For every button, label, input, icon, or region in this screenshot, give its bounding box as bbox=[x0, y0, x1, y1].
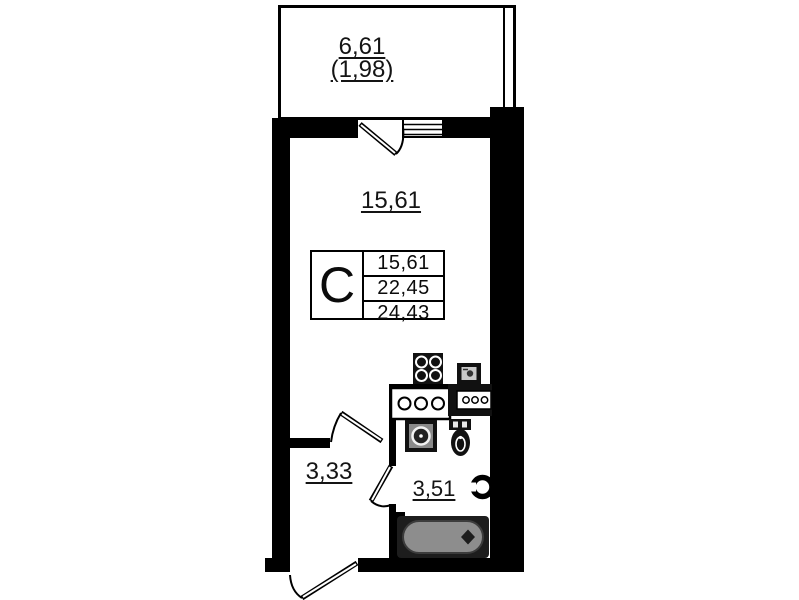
wall-left bbox=[272, 118, 290, 572]
apartment-info-box: C 15,61 22,45 24,43 bbox=[310, 250, 445, 320]
floor-plan: 6,61 (1,98) 15,61 3,33 3,51 C 15,61 22,4… bbox=[0, 0, 799, 600]
balcony-door bbox=[360, 124, 403, 154]
wall-bottom-right bbox=[358, 558, 524, 572]
entrance-door bbox=[290, 563, 357, 598]
kitchen-unit bbox=[448, 384, 492, 416]
area-value: 22,45 bbox=[364, 277, 443, 302]
room-area-label: 15,61 bbox=[331, 188, 451, 213]
living-area-value: 15,61 bbox=[364, 252, 443, 277]
balcony-reduced-area-label: (1,98) bbox=[302, 57, 422, 82]
wall-bottom-left-stub bbox=[265, 558, 290, 572]
total-area-value: 24,43 bbox=[364, 302, 443, 325]
wall-right bbox=[490, 107, 524, 572]
washing-machine-icon bbox=[405, 420, 437, 452]
bathroom-area-label: 3,51 bbox=[394, 477, 474, 500]
kitchen-counter bbox=[391, 388, 450, 419]
apartment-areas-table: 15,61 22,45 24,43 bbox=[364, 252, 443, 318]
bathroom-door bbox=[371, 466, 391, 506]
hallway-area-label: 3,33 bbox=[289, 459, 369, 484]
apartment-type-label: C bbox=[312, 252, 364, 318]
balcony-window bbox=[403, 119, 443, 137]
stove-icon bbox=[413, 353, 443, 384]
kitchen-sink-icon bbox=[457, 363, 481, 384]
toilet-icon bbox=[449, 419, 471, 456]
room-door bbox=[331, 413, 382, 442]
wall-hallway bbox=[290, 438, 330, 448]
bathtub-icon bbox=[397, 516, 489, 558]
walls bbox=[265, 107, 524, 572]
